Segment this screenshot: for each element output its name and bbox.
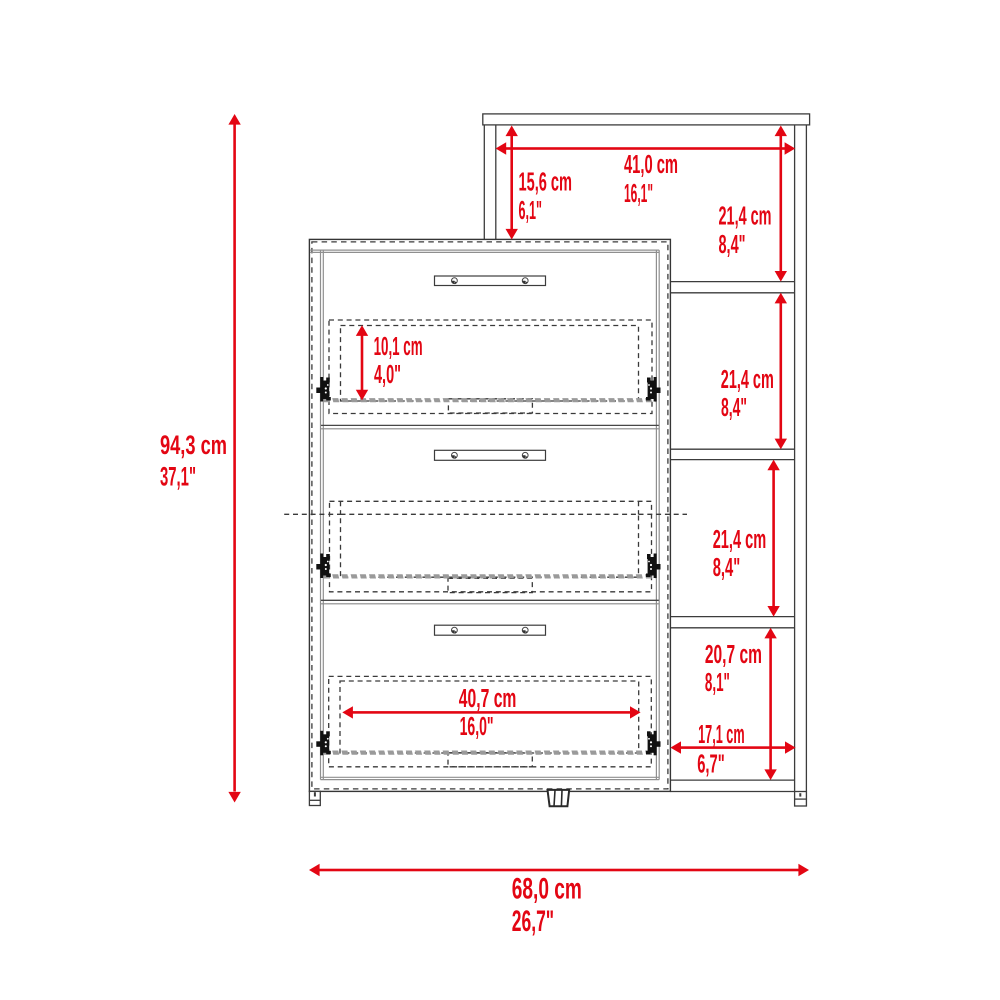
svg-text:16,1": 16,1" <box>624 180 653 208</box>
svg-text:41,0 cm: 41,0 cm <box>624 151 678 179</box>
svg-text:17,1 cm: 17,1 cm <box>698 721 745 749</box>
svg-text:8,4": 8,4" <box>721 394 747 422</box>
svg-text:21,4 cm: 21,4 cm <box>719 203 772 231</box>
svg-text:8,4": 8,4" <box>719 231 746 259</box>
svg-text:15,6 cm: 15,6 cm <box>519 169 573 197</box>
svg-text:20,7 cm: 20,7 cm <box>705 641 762 669</box>
svg-text:8,4": 8,4" <box>713 554 741 582</box>
svg-text:4,0": 4,0" <box>374 361 401 389</box>
svg-text:6,1": 6,1" <box>519 197 543 225</box>
svg-text:8,1": 8,1" <box>705 669 730 697</box>
svg-text:37,1": 37,1" <box>160 462 196 492</box>
svg-text:6,7": 6,7" <box>697 751 725 779</box>
svg-text:10,1 cm: 10,1 cm <box>374 333 423 361</box>
svg-text:68,0 cm: 68,0 cm <box>512 872 582 905</box>
svg-text:21,4 cm: 21,4 cm <box>713 526 767 554</box>
svg-text:40,7 cm: 40,7 cm <box>459 685 517 713</box>
svg-text:26,7": 26,7" <box>512 905 554 938</box>
svg-text:94,3 cm: 94,3 cm <box>160 430 227 460</box>
svg-text:16,0": 16,0" <box>460 713 494 741</box>
svg-text:21,4 cm: 21,4 cm <box>721 366 774 394</box>
